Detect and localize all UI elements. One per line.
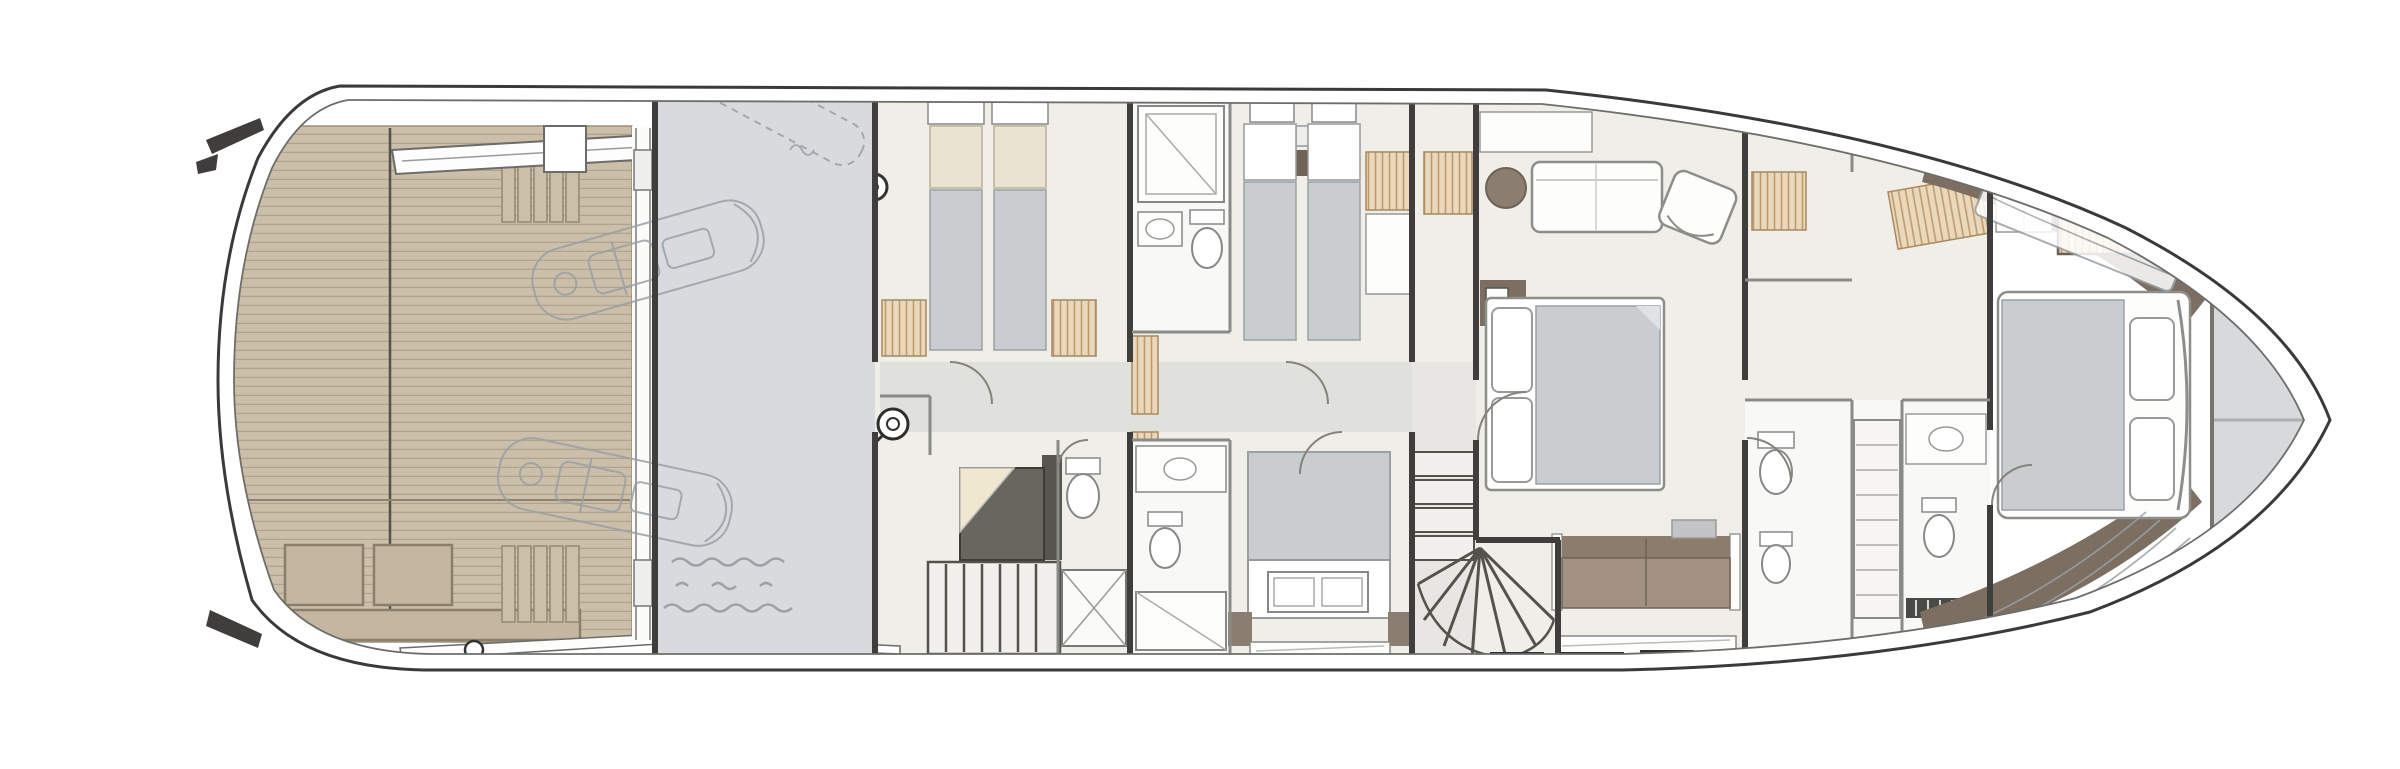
toilet-tank bbox=[1148, 512, 1182, 526]
bed-pillow bbox=[930, 126, 982, 188]
vip-bed-blanket bbox=[2002, 300, 2124, 510]
bench-cushion bbox=[1274, 578, 1314, 606]
toilet-icon bbox=[1150, 528, 1180, 568]
shelf bbox=[1852, 118, 1896, 128]
headboard bbox=[1250, 102, 1294, 122]
bed-blanket bbox=[1244, 182, 1296, 340]
headboard bbox=[1312, 102, 1356, 122]
beach-club-steps-bottom bbox=[502, 546, 579, 622]
sink-icon bbox=[1929, 427, 1963, 451]
lift-carriage bbox=[634, 560, 652, 606]
yacht-floorplan-canvas bbox=[0, 0, 2400, 769]
stair-tread bbox=[1414, 452, 1474, 476]
wardrobe bbox=[1752, 172, 1806, 230]
master-bed-blanket bbox=[1536, 306, 1660, 484]
shelf bbox=[1852, 104, 1896, 114]
bed-pillow bbox=[1308, 124, 1360, 180]
wardrobe bbox=[1052, 300, 1096, 356]
interior bbox=[218, 15, 2338, 676]
headboard bbox=[928, 102, 984, 124]
headboard bbox=[992, 102, 1048, 124]
closet bbox=[1366, 214, 1410, 294]
bed-pillow bbox=[1244, 124, 1296, 180]
double-bed-blanket bbox=[1248, 452, 1390, 560]
toilet-icon bbox=[1192, 228, 1222, 268]
toilet-icon bbox=[1760, 450, 1792, 494]
aft-staircase bbox=[928, 562, 1060, 654]
sink-icon bbox=[1146, 219, 1174, 239]
window-chaise bbox=[1532, 162, 1662, 232]
wardrobe bbox=[1366, 152, 1410, 210]
bed-pillow bbox=[1492, 398, 1532, 482]
sink-icon bbox=[1164, 458, 1196, 480]
bed-pillow bbox=[2130, 318, 2174, 400]
toilet-tank bbox=[1066, 458, 1100, 474]
bed-blanket bbox=[930, 190, 982, 350]
locker-deck bbox=[2212, 206, 2307, 614]
bench-cushion bbox=[1322, 578, 1362, 606]
stair-tread bbox=[1414, 480, 1474, 504]
sofa-pillow bbox=[1672, 520, 1716, 538]
bed-pillow bbox=[994, 126, 1046, 188]
lift-carriage bbox=[634, 150, 652, 190]
wardrobe bbox=[1424, 152, 1472, 214]
toilet-icon bbox=[1067, 474, 1099, 518]
deck-plan-figure bbox=[0, 0, 2400, 769]
beach-club bbox=[220, 126, 632, 642]
stair-tread bbox=[1414, 508, 1474, 532]
shelving-column bbox=[1854, 420, 1900, 618]
vanity-desk bbox=[1480, 112, 1592, 152]
tender-lift bbox=[632, 126, 655, 642]
engine-room bbox=[655, 100, 875, 656]
bed-blanket bbox=[1308, 182, 1360, 340]
toilet-tank bbox=[1190, 210, 1224, 224]
sofa-armrest bbox=[1730, 534, 1740, 610]
toilet-icon bbox=[1924, 515, 1954, 557]
bed-pillow bbox=[2130, 418, 2174, 500]
washer-porthole-icon bbox=[878, 409, 908, 439]
bidet-tank bbox=[1760, 532, 1792, 546]
side-table bbox=[1388, 612, 1410, 646]
wardrobe bbox=[882, 300, 926, 356]
bed-blanket bbox=[994, 190, 1046, 350]
toilet-tank bbox=[1922, 498, 1956, 512]
bed-pillow bbox=[1492, 308, 1532, 392]
bidet-icon bbox=[1762, 545, 1790, 583]
side-table bbox=[1228, 612, 1252, 646]
vanity-stool bbox=[1486, 168, 1526, 208]
winch-block bbox=[544, 126, 586, 172]
foredeck-locker bbox=[2212, 206, 2307, 614]
